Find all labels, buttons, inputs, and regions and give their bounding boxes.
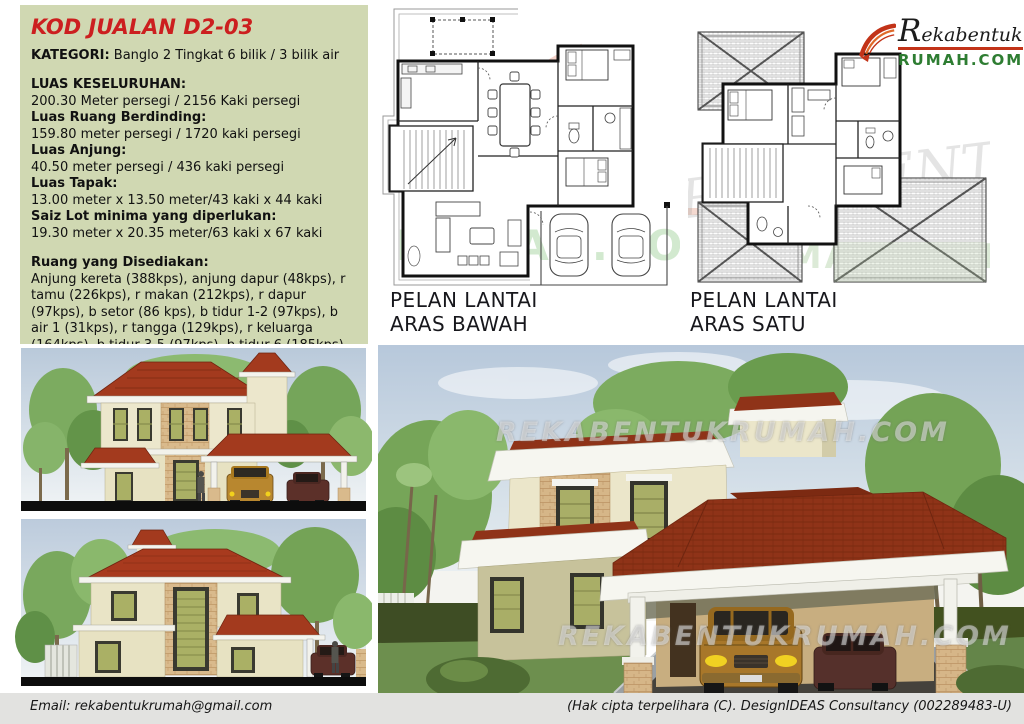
brochure-page: KOD JUALAN D2-03 KATEGORI: Banglo 2 Ting… xyxy=(0,0,1024,724)
footer-bar: Email: rekabentukrumah@gmail.com (Hak ci… xyxy=(0,693,1024,724)
ground-bar xyxy=(21,677,366,686)
spec-row: Luas Ruang Berdinding: 159.80 meter pers… xyxy=(31,110,358,143)
company-logo: Rekabentuk RUMAH.COM xyxy=(858,20,1023,70)
first-plan-label: PELAN LANTAI ARAS SATU xyxy=(690,289,838,336)
category-value: Banglo 2 Tingkat 6 bilik / 3 bilik air xyxy=(114,48,339,63)
car-plan xyxy=(550,214,588,276)
contact-email: Email: rekabentukrumah@gmail.com xyxy=(30,699,272,714)
logo-roof-icon xyxy=(858,20,896,66)
page-title: KOD JUALAN D2-03 xyxy=(31,15,358,39)
logo-name: Rekabentuk xyxy=(898,20,1023,50)
suv-gold xyxy=(227,466,273,505)
ground-plan-label: PELAN LANTAI ARAS BAWAH xyxy=(390,289,538,336)
category-line: KATEGORI: Banglo 2 Tingkat 6 bilik / 3 b… xyxy=(31,48,358,64)
rooms-text: Anjung kereta (388kps), anjung dapur (48… xyxy=(31,272,358,345)
perspective-render-wrap: REKABENTUKRUMAH.COM REKABENTUKRUMAH.COM xyxy=(378,345,1024,693)
side-elevation-render xyxy=(15,517,372,686)
sofa-cushions xyxy=(458,256,489,265)
porch-columns xyxy=(430,17,495,56)
spec-row: LUAS KESELURUHAN: 200.30 Meter persegi /… xyxy=(31,77,358,110)
rooms-label: Ruang yang Disediakan: xyxy=(31,255,358,272)
spec-row: Luas Anjung: 40.50 meter persegi / 436 k… xyxy=(31,143,358,176)
spec-row: Saiz Lot minima yang diperlukan: 19.30 m… xyxy=(31,209,358,242)
category-label: KATEGORI: xyxy=(31,48,110,63)
front-elevation-render xyxy=(15,348,372,515)
watermark-upper: REKABENTUKRUMAH.COM xyxy=(496,417,950,448)
logo-domain: RUMAH.COM xyxy=(898,50,1023,70)
watermark-lower: REKABENTUKRUMAH.COM xyxy=(558,621,1012,652)
copyright-text: (Hak cipta terpelihara (C). DesignIDEAS … xyxy=(567,699,1012,714)
ground-floor-plan: R RUMAH.COM xyxy=(378,6,680,288)
spec-row: Luas Tapak: 13.00 meter x 13.50 meter/43… xyxy=(31,176,358,209)
ground-bar xyxy=(21,501,366,511)
spec-panel: KOD JUALAN D2-03 KATEGORI: Banglo 2 Ting… xyxy=(20,5,368,344)
